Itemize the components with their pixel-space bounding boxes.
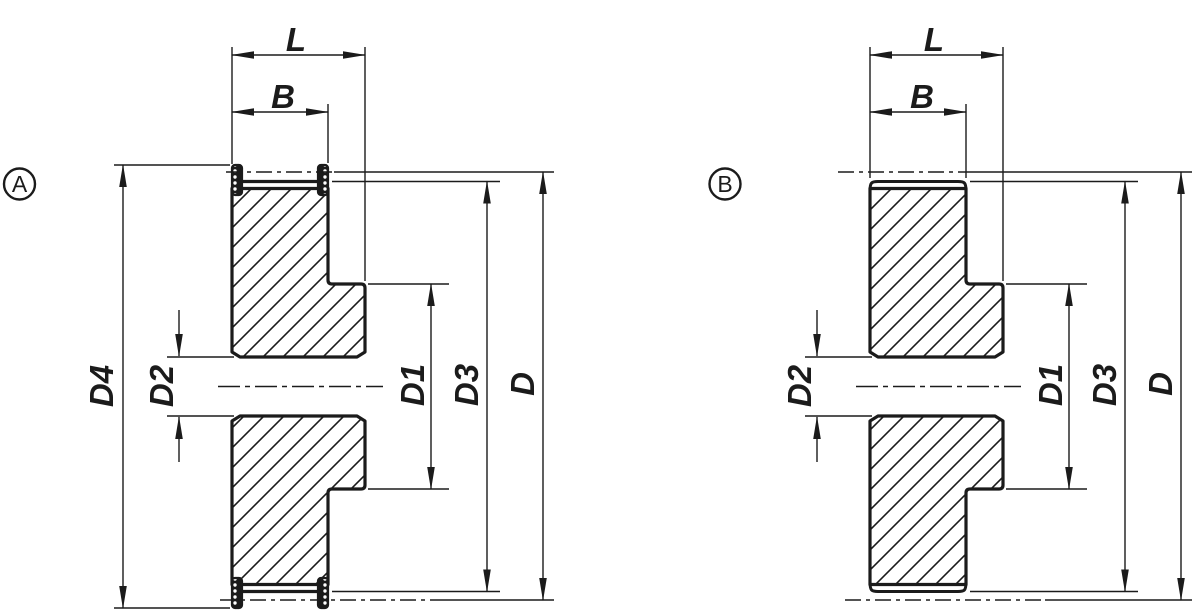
b-label-d3: D3 — [1086, 364, 1123, 406]
a-label-d: D — [504, 372, 541, 396]
technical-drawing-page: L B D4 D2 D1 D3 D A — [0, 0, 1200, 614]
a-label-l: L — [286, 21, 306, 58]
b-label-d: D — [1142, 372, 1179, 396]
a-label-d4: D4 — [83, 365, 120, 407]
b-label-d2: D2 — [781, 364, 818, 407]
a-label-d3: D3 — [448, 364, 485, 406]
a-label-d2: D2 — [143, 364, 180, 407]
canvas-background — [0, 0, 1200, 614]
a-flange-top-right — [318, 165, 328, 195]
a-flange-top-left — [232, 165, 242, 195]
b-label-l: L — [924, 21, 944, 58]
b-label-d1: D1 — [1032, 364, 1069, 406]
a-label-d1: D1 — [394, 364, 431, 406]
a-marker-letter: A — [12, 171, 28, 197]
b-label-b: B — [910, 78, 934, 115]
a-label-b: B — [271, 78, 295, 115]
a-flange-bottom-right — [318, 578, 328, 608]
b-marker-letter: B — [717, 171, 732, 197]
a-flange-bottom-left — [232, 578, 242, 608]
pulley-drawing: L B D4 D2 D1 D3 D A — [0, 0, 1200, 614]
